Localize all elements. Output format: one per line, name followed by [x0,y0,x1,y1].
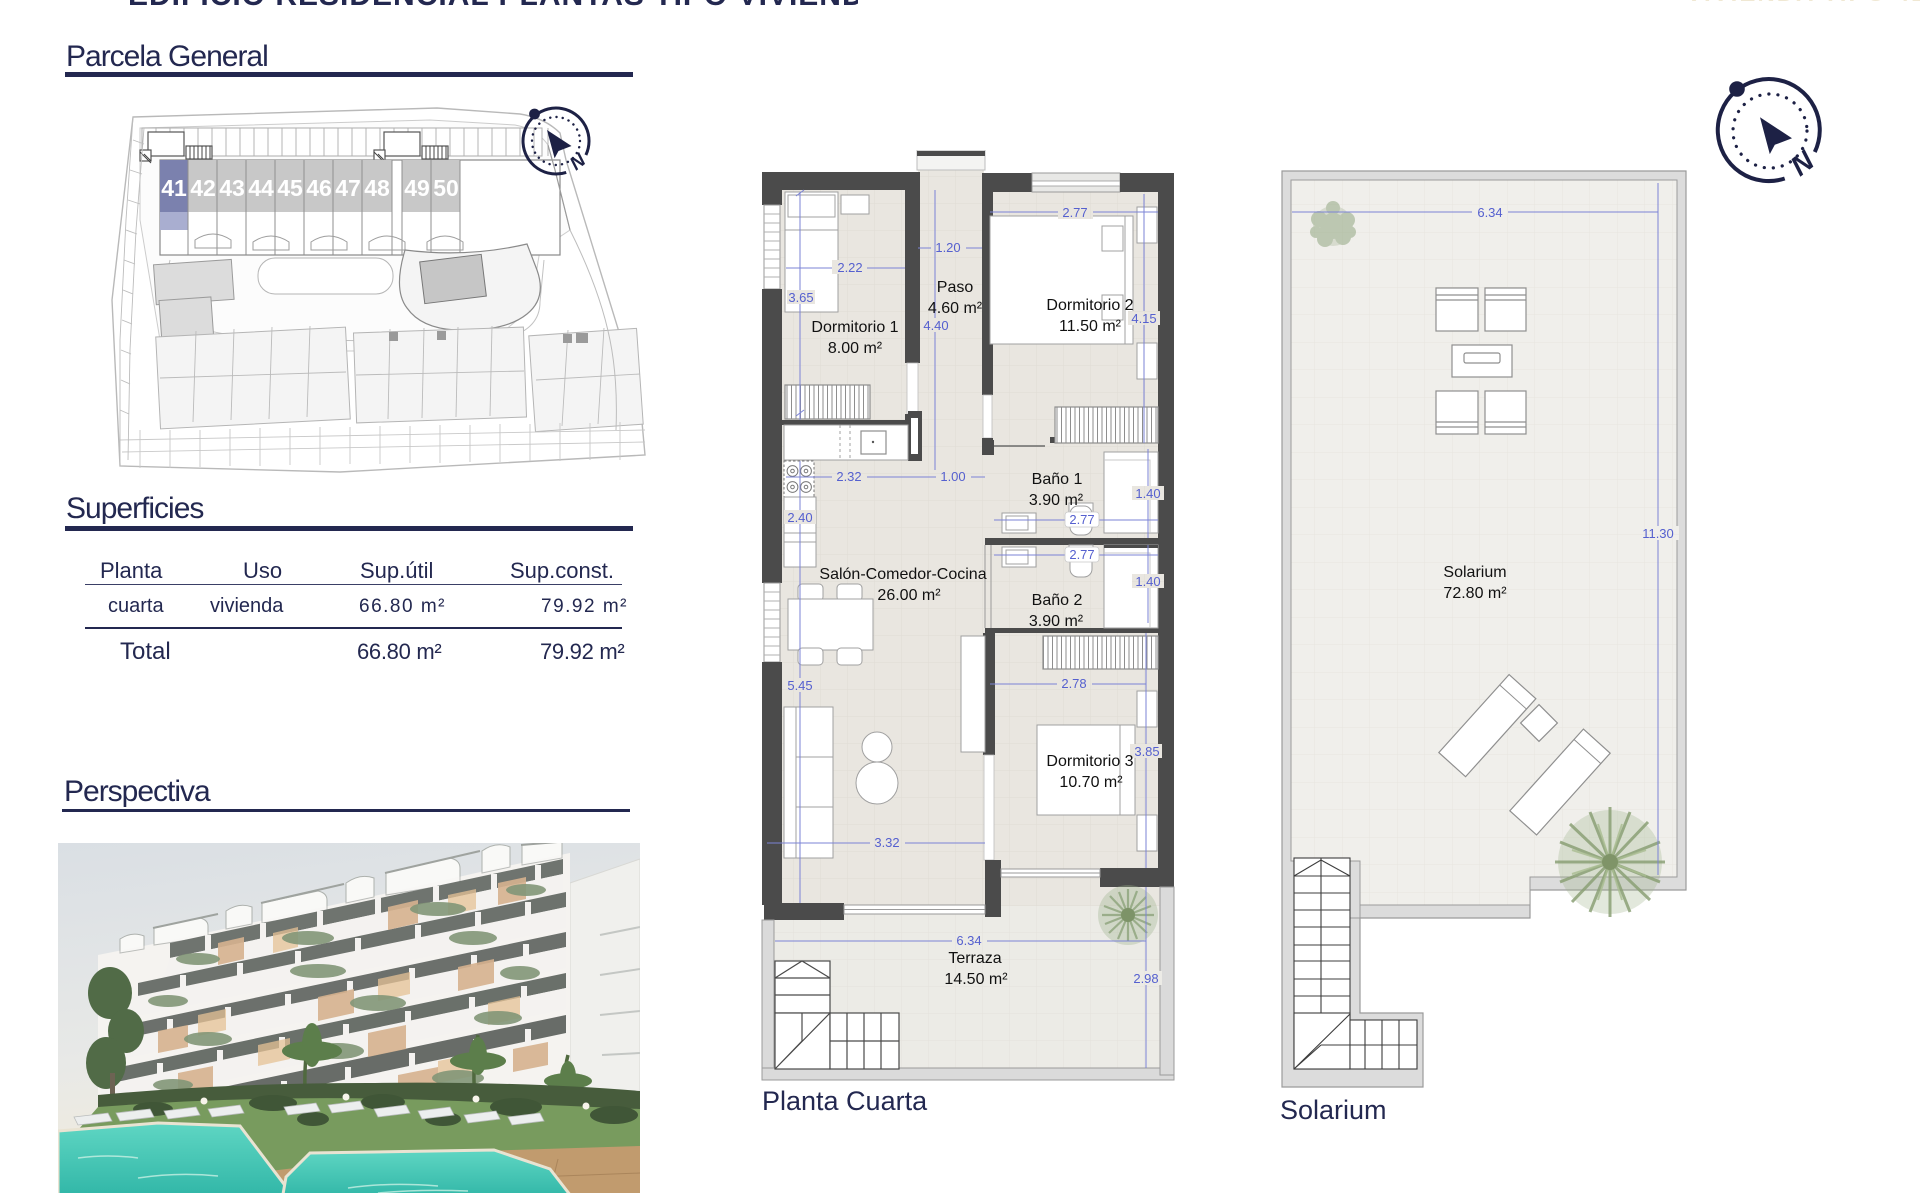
svg-text:Dormitorio 1: Dormitorio 1 [811,319,898,336]
svg-text:1.00: 1.00 [940,469,965,484]
svg-text:14.50 m²: 14.50 m² [944,971,1008,988]
svg-text:4.60 m²: 4.60 m² [928,300,983,317]
svg-text:2.77: 2.77 [1069,547,1094,562]
svg-text:2.32: 2.32 [836,469,861,484]
svg-text:45: 45 [277,175,303,201]
svg-text:41: 41 [161,175,187,201]
svg-text:6.34: 6.34 [956,933,981,948]
svg-text:3.65: 3.65 [788,290,813,305]
svg-text:2.22: 2.22 [837,260,862,275]
svg-text:3.85: 3.85 [1134,744,1159,759]
svg-text:Solarium: Solarium [1443,564,1506,581]
svg-text:50: 50 [433,175,459,201]
svg-text:8.00 m²: 8.00 m² [828,340,883,357]
svg-text:Baño 2: Baño 2 [1032,592,1083,609]
svg-text:Terraza: Terraza [948,950,1001,967]
svg-text:1.40: 1.40 [1135,574,1160,589]
svg-text:43: 43 [219,175,245,201]
svg-text:44: 44 [248,175,274,201]
svg-text:72.80 m²: 72.80 m² [1443,585,1507,602]
svg-text:Salón-Comedor-Cocina: Salón-Comedor-Cocina [819,566,986,583]
svg-text:4.40: 4.40 [923,318,948,333]
svg-text:3.90 m²: 3.90 m² [1029,613,1084,630]
svg-text:Paso: Paso [937,279,974,296]
svg-text:1.20: 1.20 [935,240,960,255]
svg-text:11.50 m²: 11.50 m² [1059,318,1122,335]
svg-text:48: 48 [364,175,390,201]
svg-text:2.40: 2.40 [787,510,812,525]
svg-text:4.15: 4.15 [1131,311,1156,326]
svg-text:11.30: 11.30 [1642,526,1674,541]
svg-text:1.40: 1.40 [1135,486,1160,501]
svg-text:26.00 m²: 26.00 m² [877,587,941,604]
svg-text:Dormitorio 3: Dormitorio 3 [1046,753,1133,770]
svg-text:Dormitorio 2: Dormitorio 2 [1046,297,1133,314]
svg-text:42: 42 [190,175,216,201]
svg-text:2.77: 2.77 [1062,205,1087,220]
svg-text:6.34: 6.34 [1477,205,1502,220]
svg-text:2.77: 2.77 [1069,512,1094,527]
svg-text:5.45: 5.45 [787,678,812,693]
svg-text:Baño 1: Baño 1 [1032,471,1083,488]
svg-text:3.90 m²: 3.90 m² [1029,492,1084,509]
svg-text:2.98: 2.98 [1133,971,1158,986]
svg-text:10.70 m²: 10.70 m² [1059,774,1123,791]
svg-text:46: 46 [306,175,332,201]
svg-text:2.78: 2.78 [1061,676,1086,691]
svg-text:3.32: 3.32 [874,835,899,850]
svg-text:49: 49 [404,175,430,201]
svg-text:47: 47 [335,175,361,201]
